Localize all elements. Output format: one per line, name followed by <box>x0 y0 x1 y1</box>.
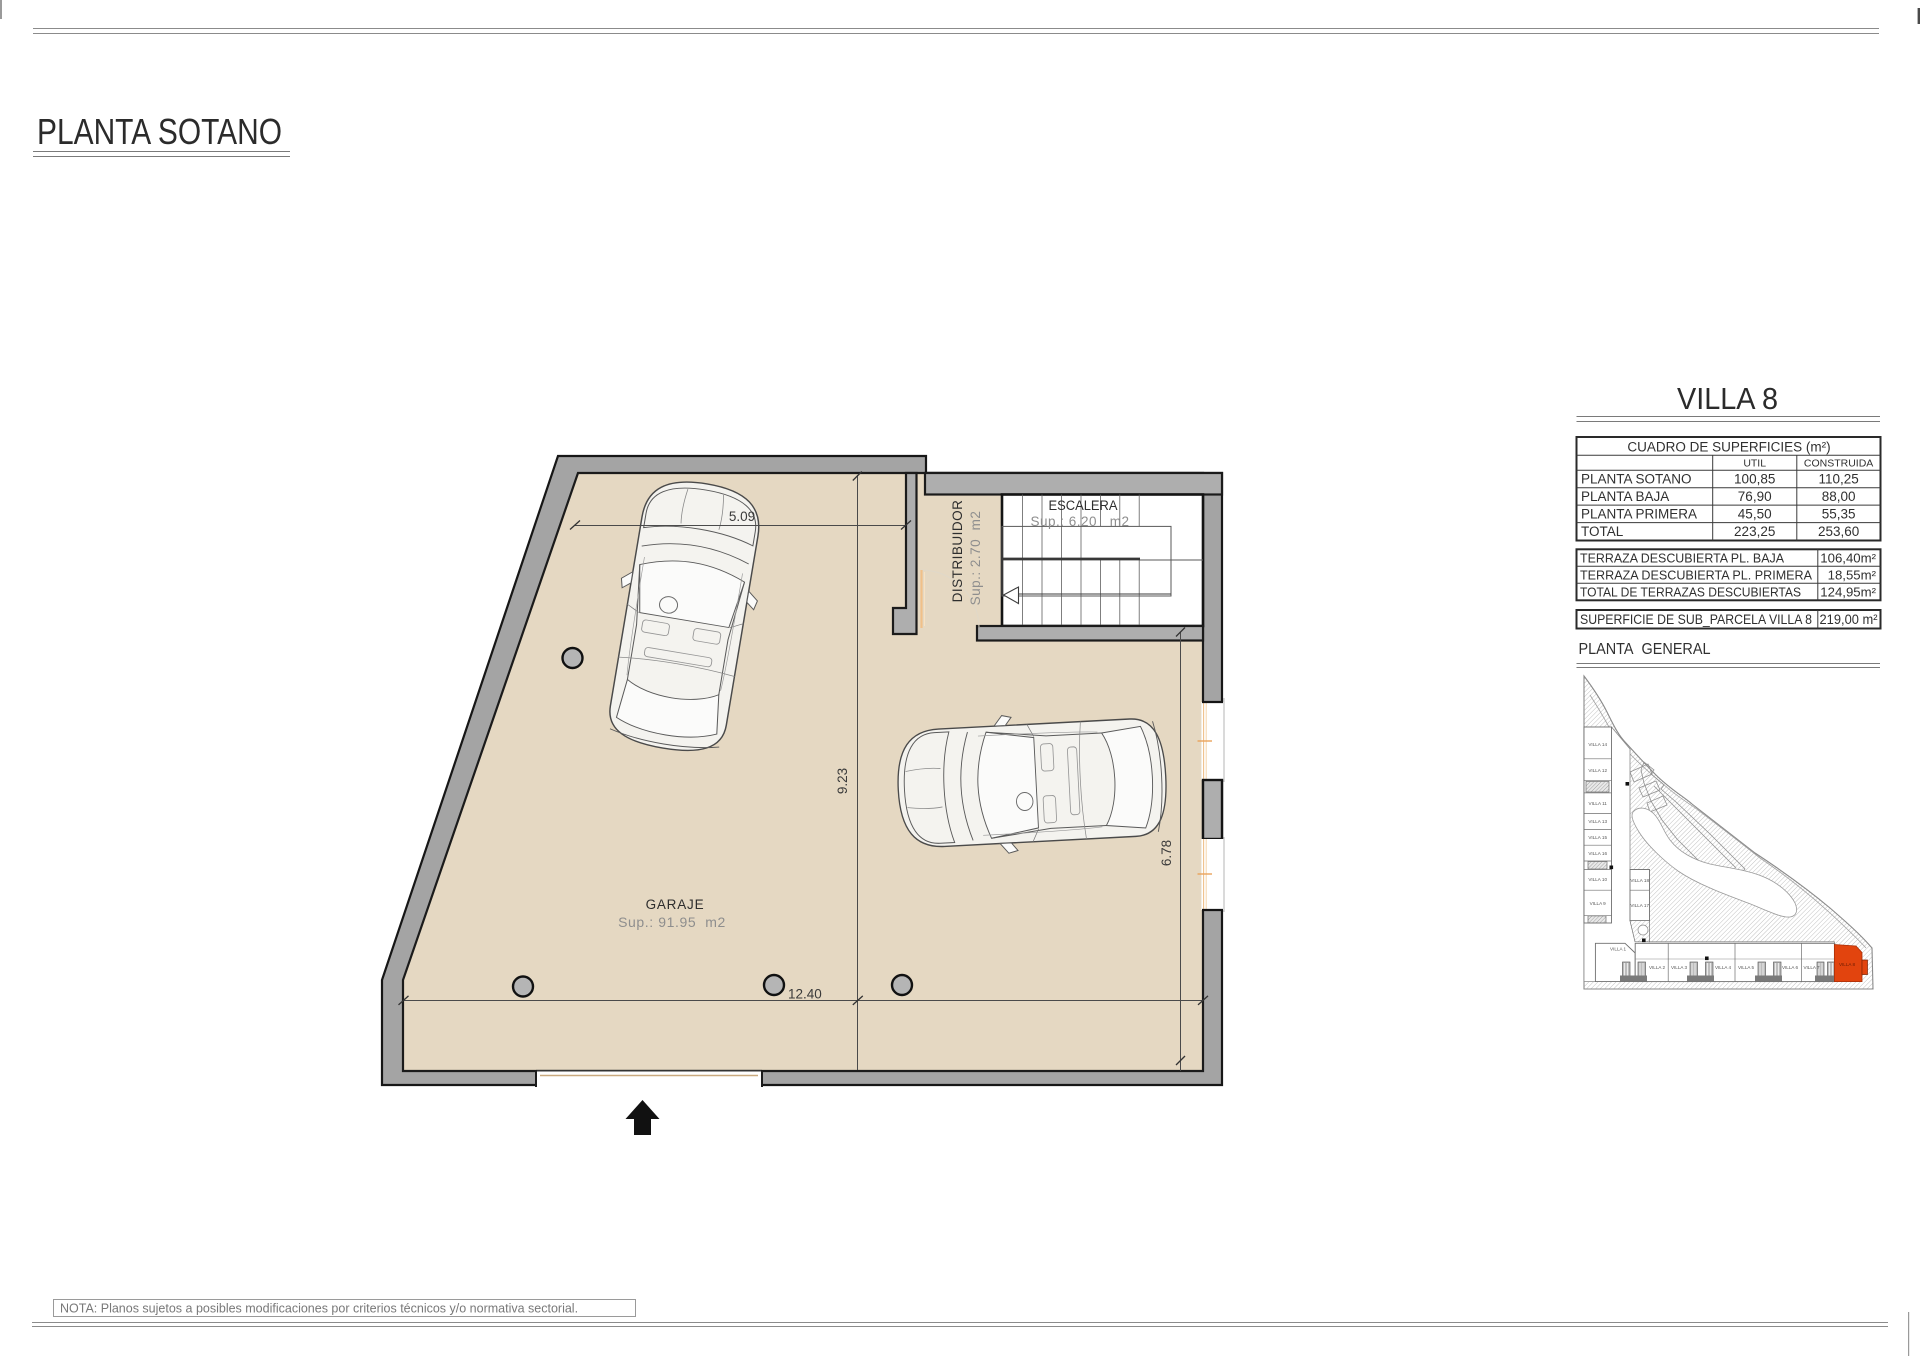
svg-text:Sup.: 2.70 m2: Sup.: 2.70 m2 <box>968 511 983 606</box>
svg-text:VILLA 17: VILLA 17 <box>1630 903 1649 908</box>
svg-text:Sup.: 91.95 m2: Sup.: 91.95 m2 <box>618 914 726 930</box>
svg-text:PLANTA SOTANO: PLANTA SOTANO <box>37 111 282 152</box>
svg-text:PLANTA BAJA: PLANTA BAJA <box>1581 489 1669 504</box>
svg-text:NOTA: Planos sujetos a posible: NOTA: Planos sujetos a posibles modifica… <box>60 1302 578 1316</box>
svg-text:PLANTA GENERAL: PLANTA GENERAL <box>1579 641 1711 658</box>
svg-text:TERRAZA DESCUBIERTA PL. PRIMER: TERRAZA DESCUBIERTA PL. PRIMERA <box>1580 568 1812 583</box>
svg-text:VILLA 13: VILLA 13 <box>1588 819 1607 824</box>
svg-text:18,55m²: 18,55m² <box>1828 568 1877 583</box>
svg-text:CONSTRUIDA: CONSTRUIDA <box>1804 458 1873 470</box>
svg-text:219,00 m²: 219,00 m² <box>1820 612 1878 627</box>
svg-text:PLANTA SOTANO: PLANTA SOTANO <box>1581 472 1692 487</box>
svg-text:124,95m²: 124,95m² <box>1820 584 1876 599</box>
svg-text:VILLA 3: VILLA 3 <box>1671 965 1688 970</box>
svg-text:VILLA 16: VILLA 16 <box>1588 851 1607 856</box>
svg-text:55,35: 55,35 <box>1822 506 1856 521</box>
svg-text:VILLA 1: VILLA 1 <box>1610 947 1627 952</box>
svg-text:VILLA 11: VILLA 11 <box>1589 801 1608 806</box>
svg-text:TOTAL DE TERRAZAS DESCUBIERTAS: TOTAL DE TERRAZAS DESCUBIERTAS <box>1580 584 1801 599</box>
svg-text:VILLA 10: VILLA 10 <box>1588 877 1607 882</box>
svg-text:GARAJE: GARAJE <box>646 897 705 912</box>
svg-text:PLANTA PRIMERA: PLANTA PRIMERA <box>1581 506 1697 521</box>
svg-text:VILLA 8: VILLA 8 <box>1677 381 1778 416</box>
svg-text:253,60: 253,60 <box>1818 524 1859 539</box>
svg-text:9.23: 9.23 <box>835 768 850 794</box>
svg-text:5.09: 5.09 <box>729 509 755 524</box>
svg-text:ESCALERA: ESCALERA <box>1049 498 1118 513</box>
svg-text:VILLA 12: VILLA 12 <box>1588 768 1607 773</box>
svg-text:VILLA 18: VILLA 18 <box>1630 878 1649 883</box>
svg-text:12.40: 12.40 <box>788 987 822 1002</box>
svg-text:88,00: 88,00 <box>1822 489 1856 504</box>
svg-text:76,90: 76,90 <box>1738 489 1772 504</box>
svg-text:TOTAL: TOTAL <box>1581 524 1624 539</box>
svg-text:UTIL: UTIL <box>1743 458 1766 470</box>
svg-text:VILLA 4: VILLA 4 <box>1715 965 1732 970</box>
svg-text:Sup.: 6.20 m2: Sup.: 6.20 m2 <box>1030 514 1129 529</box>
svg-text:DISTRIBUIDOR: DISTRIBUIDOR <box>950 500 965 603</box>
svg-text:SUPERFICIE DE SUB_PARCELA VILL: SUPERFICIE DE SUB_PARCELA VILLA 8 <box>1580 612 1812 627</box>
svg-text:100,85: 100,85 <box>1734 472 1775 487</box>
svg-text:VILLA 14: VILLA 14 <box>1588 742 1607 747</box>
svg-text:CUADRO DE SUPERFICIES (m²): CUADRO DE SUPERFICIES (m²) <box>1627 440 1830 455</box>
svg-text:TERRAZA DESCUBIERTA PL. BAJA: TERRAZA DESCUBIERTA PL. BAJA <box>1580 551 1784 566</box>
svg-text:106,40m²: 106,40m² <box>1820 551 1876 566</box>
svg-text:VILLA 15: VILLA 15 <box>1588 835 1607 840</box>
svg-text:6.78: 6.78 <box>1159 840 1174 866</box>
svg-text:VILLA 2: VILLA 2 <box>1649 965 1666 970</box>
svg-text:110,25: 110,25 <box>1818 472 1858 487</box>
svg-text:223,25: 223,25 <box>1734 524 1775 539</box>
svg-text:VILLA 8: VILLA 8 <box>1839 962 1856 967</box>
svg-text:VILLA 6: VILLA 6 <box>1782 965 1799 970</box>
svg-text:VILLA 9: VILLA 9 <box>1590 901 1607 906</box>
svg-text:VILLA 5: VILLA 5 <box>1738 965 1755 970</box>
svg-text:VILLA 7: VILLA 7 <box>1803 965 1820 970</box>
svg-text:45,50: 45,50 <box>1738 506 1772 521</box>
